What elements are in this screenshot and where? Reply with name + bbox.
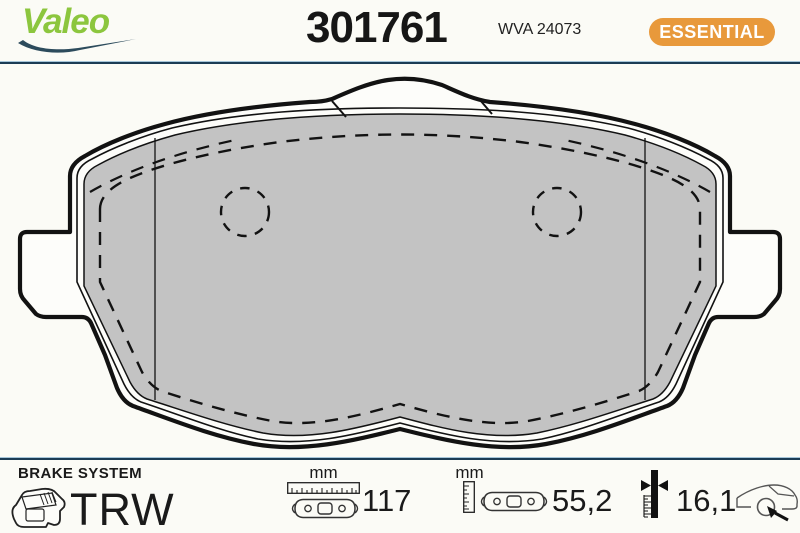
wva-number: WVA 24073 — [498, 21, 581, 39]
valeo-logo: Valeo — [22, 2, 109, 42]
trw-caliper-icon — [8, 485, 68, 531]
thickness-icon — [638, 470, 674, 518]
car-front-icon — [736, 476, 798, 522]
valeo-swoosh-icon — [16, 38, 138, 56]
essential-badge: ESSENTIAL — [649, 18, 775, 46]
width-pad-icon — [288, 495, 362, 522]
brake-pad-drawing — [0, 64, 800, 456]
part-number: 301761 — [306, 3, 447, 53]
height-value: 55,2 — [552, 483, 612, 519]
thickness-value: 16,1 — [676, 483, 736, 519]
trw-logo: TRW — [70, 484, 175, 533]
height-pad-icon — [477, 488, 551, 515]
width-value: 117 — [362, 483, 411, 519]
height-unit-label: mm — [433, 463, 506, 483]
height-ruler-icon — [463, 481, 475, 513]
width-unit-label: mm — [287, 463, 360, 483]
brake-system-label: BRAKE SYSTEM — [18, 465, 142, 482]
product-sheet: Valeo 301761 WVA 24073 ESSENTIAL BRAKE S… — [0, 0, 800, 533]
footer-divider — [0, 457, 800, 460]
width-ruler-icon — [287, 482, 360, 494]
